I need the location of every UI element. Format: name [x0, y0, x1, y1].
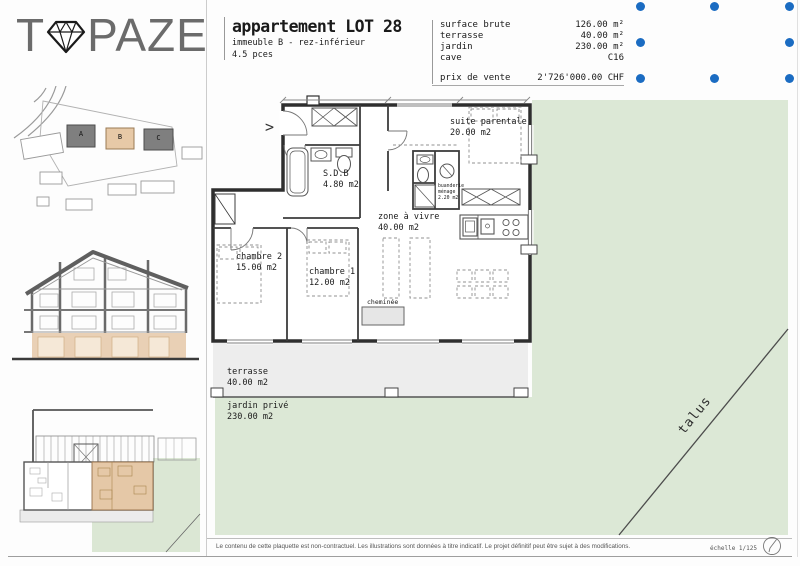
site-plan-drawing	[8, 86, 203, 218]
north-arrow-icon	[762, 536, 782, 556]
spec-value: 40.00 m²	[581, 31, 624, 42]
blue-dot	[785, 74, 794, 83]
spec-value: 126.00 m²	[575, 20, 624, 31]
site-building-c-label: C	[144, 134, 173, 142]
blue-dot	[636, 74, 645, 83]
room-label-chambre-2: chambre 2 15.00 m2	[236, 252, 282, 274]
room-label-buanderie: buanderie ménage 2.20 m2	[438, 184, 464, 202]
key-floor-plan-drawing	[8, 398, 206, 560]
road-lines	[14, 86, 66, 138]
site-building-a-label: A	[67, 130, 95, 138]
title-block: appartement LOT 28 immeuble B - rez-infé…	[224, 17, 402, 60]
spec-label: terrasse	[440, 31, 483, 42]
diamond-icon	[44, 15, 88, 57]
keyplan-apartments	[24, 462, 153, 510]
logo-letter-t: T	[16, 12, 45, 58]
page-bottom-border	[8, 556, 792, 557]
spec-table: surface brute 126.00 m² terrasse 40.00 m…	[432, 20, 624, 84]
scale-label: échelle 1/125	[695, 545, 757, 552]
entry-arrow: >	[265, 118, 274, 136]
disclaimer-text: Le contenu de cette plaquette est non-co…	[216, 543, 630, 550]
blue-dot	[636, 2, 645, 11]
price-value: 2'726'000.00 CHF	[537, 73, 624, 84]
room-area: 4.80 m2	[323, 180, 359, 191]
footer-divider	[207, 538, 792, 539]
apartment-room-count: 4.5 pces	[232, 50, 402, 60]
spec-row-surface: surface brute 126.00 m²	[440, 20, 624, 31]
room-label-suite-parentale: suite parentale 20.00 m2	[450, 117, 527, 139]
kitchen	[460, 215, 528, 239]
brochure-page: T PAZE A B C	[0, 0, 800, 566]
apartment-title: appartement LOT 28	[232, 17, 402, 36]
keyplan-terrace	[20, 510, 153, 522]
room-label-jardin-prive: jardin privé 230.00 m2	[227, 401, 288, 423]
fireplace-box	[362, 307, 404, 325]
room-name: zone à vivre	[378, 212, 439, 223]
blue-dot	[785, 2, 794, 11]
building-section-drawing	[8, 232, 203, 367]
room-area: 15.00 m2	[236, 263, 282, 274]
room-name: S.D.B	[323, 169, 359, 180]
room-area: 40.00 m2	[227, 378, 268, 389]
blue-dot	[710, 74, 719, 83]
apartment-subtitle: immeuble B - rez-inférieur	[232, 38, 402, 48]
price-row: prix de vente 2'726'000.00 CHF	[440, 73, 624, 84]
logo-letters-paze: PAZE	[87, 12, 208, 58]
room-name: suite parentale	[450, 117, 527, 128]
price-label: prix de vente	[440, 73, 510, 84]
room-area: 230.00 m2	[227, 412, 288, 423]
room-name: terrasse	[227, 367, 268, 378]
room-name: chambre 2	[236, 252, 282, 263]
room-area: 40.00 m2	[378, 223, 439, 234]
room-name: cheminée	[367, 297, 398, 308]
spec-label: jardin	[440, 42, 473, 53]
topaze-logo: T PAZE	[16, 12, 208, 58]
spec-value: 230.00 m²	[575, 42, 624, 53]
blue-dot	[636, 38, 645, 47]
room-area: 12.00 m2	[309, 278, 355, 289]
spec-row-terrasse: terrasse 40.00 m²	[440, 31, 624, 42]
room-name: jardin privé	[227, 401, 288, 412]
spec-label: surface brute	[440, 20, 510, 31]
blue-dot	[785, 38, 794, 47]
spec-row-jardin: jardin 230.00 m²	[440, 42, 624, 53]
spec-table-rule	[432, 85, 624, 86]
spec-value: C16	[608, 53, 624, 64]
site-building-b-label: B	[106, 133, 134, 141]
section-structure	[24, 252, 188, 333]
room-area: 2.20 m2	[438, 196, 464, 202]
room-label-sdb: S.D.B 4.80 m2	[323, 169, 359, 191]
spec-label: cave	[440, 53, 462, 64]
room-label-zone-a-vivre: zone à vivre 40.00 m2	[378, 212, 439, 234]
room-label-terrasse: terrasse 40.00 m2	[227, 367, 268, 389]
room-name: chambre 1	[309, 267, 355, 278]
spec-row-cave: cave C16	[440, 53, 624, 64]
floor-plan-drawing	[207, 95, 800, 538]
blue-dot	[710, 2, 719, 11]
room-area: 20.00 m2	[450, 128, 527, 139]
room-label-cheminee: cheminée	[367, 297, 398, 308]
room-label-chambre-1: chambre 1 12.00 m2	[309, 267, 355, 289]
